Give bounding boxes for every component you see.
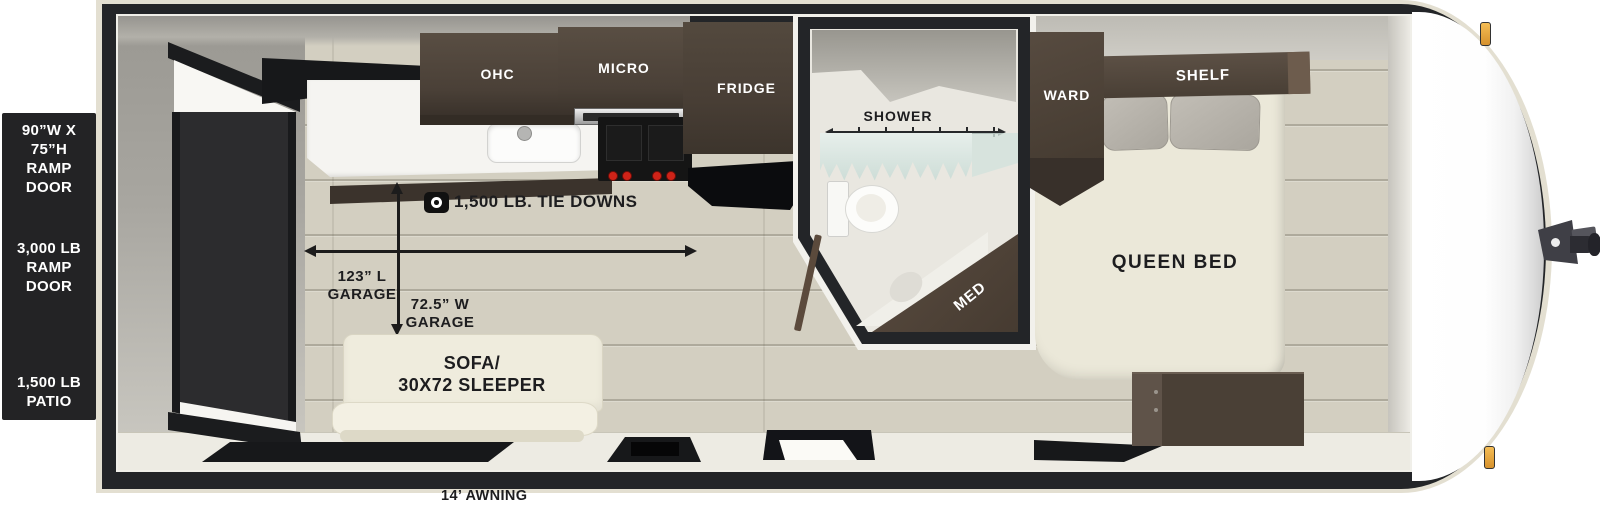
shelf-label: SHELF [1176, 66, 1231, 84]
microwave-cabinet: MICRO [558, 27, 690, 109]
shower-label: SHOWER [818, 108, 978, 124]
entry-door-opening [763, 430, 875, 460]
sofa-line2: 30X72 SLEEPER [343, 374, 601, 396]
garage-width-label: 72.5” W GARAGE [390, 296, 490, 332]
arrowhead-right [685, 245, 697, 257]
ramp-door-panel [172, 112, 296, 434]
entry-door-panel [779, 440, 857, 460]
fridge-label: FRIDGE [717, 80, 776, 96]
garage-width-line2: GARAGE [390, 314, 490, 332]
marker-light-bottom [1484, 446, 1495, 469]
shelf-end-cap [1288, 52, 1311, 94]
patio-capacity-line1: 1,500 LB [2, 373, 96, 392]
marker-light-top [1480, 22, 1491, 46]
burner-right [648, 125, 684, 161]
toilet-bowl [845, 185, 899, 233]
knob-3 [652, 171, 662, 181]
ohc-label: OHC [480, 66, 514, 82]
micro-label: MICRO [598, 60, 650, 76]
dresser-handle-bottom [1154, 408, 1158, 412]
knob-4 [666, 171, 676, 181]
ramp-door-capacity-line1: 3,000 LB [2, 239, 96, 258]
garage-length-line1: 123” L [314, 268, 410, 286]
burner-left [606, 125, 642, 161]
tie-down-icon [424, 192, 449, 213]
overhead-cabinet: OHC [420, 33, 575, 125]
trailer-nose-cap [1412, 12, 1544, 481]
arrowhead-left [304, 245, 316, 257]
fridge-cabinet: FRIDGE [683, 22, 810, 154]
bedroom-shelf: SHELF [1096, 52, 1311, 99]
garage-floor-mat [202, 442, 514, 462]
ward-label: WARD [1044, 87, 1091, 103]
wardrobe: WARD [1030, 32, 1104, 158]
pillow-left [1101, 93, 1169, 151]
tie-down-icon-ring [431, 197, 442, 208]
sink-faucet [517, 126, 532, 141]
left-info-panel: 90”W X 75”H RAMP DOOR 3,000 LB RAMP DOOR… [2, 113, 96, 420]
floorplan-canvas: 90”W X 75”H RAMP DOOR 3,000 LB RAMP DOOR… [0, 0, 1600, 511]
ramp-door-size-line2: RAMP DOOR [2, 159, 96, 197]
kitchen-sink [487, 123, 581, 163]
patio-capacity-line2: PATIO [2, 392, 96, 411]
ramp-door-size-label: 90”W X 75”H RAMP DOOR [2, 121, 96, 197]
cooktop [598, 117, 692, 181]
right-wall [1388, 16, 1410, 434]
dresser-handle-top [1154, 390, 1158, 394]
garage-width-line1: 72.5” W [390, 296, 490, 314]
hitch-coupler [1588, 233, 1600, 256]
knob-1 [608, 171, 618, 181]
patio-capacity-label: 1,500 LB PATIO [2, 373, 96, 411]
trailer-interior: OHC MICRO FRIDGE 1,500 LB. [116, 14, 1412, 472]
awning-label: 14’ AWNING [441, 488, 601, 505]
garage-length-arrow-line [315, 250, 685, 253]
pillow-right [1169, 93, 1260, 151]
sofa-label: SOFA/ 30X72 SLEEPER [343, 352, 601, 396]
entry-step-inner [631, 442, 679, 456]
sofa-line1: SOFA/ [343, 352, 601, 374]
ramp-door-size-line1: 90”W X 75”H [2, 121, 96, 159]
queen-bed-label: QUEEN BED [1075, 252, 1275, 274]
ramp-door-capacity-line2: RAMP DOOR [2, 258, 96, 296]
ramp-door-capacity-label: 3,000 LB RAMP DOOR [2, 239, 96, 296]
arrowhead-up [391, 182, 403, 194]
sofa-base [340, 430, 584, 442]
hitch-pin-hole [1551, 238, 1560, 247]
tie-downs-label: 1,500 LB. TIE DOWNS [454, 192, 734, 212]
bed-foot-dresser [1132, 372, 1304, 446]
toilet-bowl-inner [856, 194, 886, 222]
knob-2 [622, 171, 632, 181]
